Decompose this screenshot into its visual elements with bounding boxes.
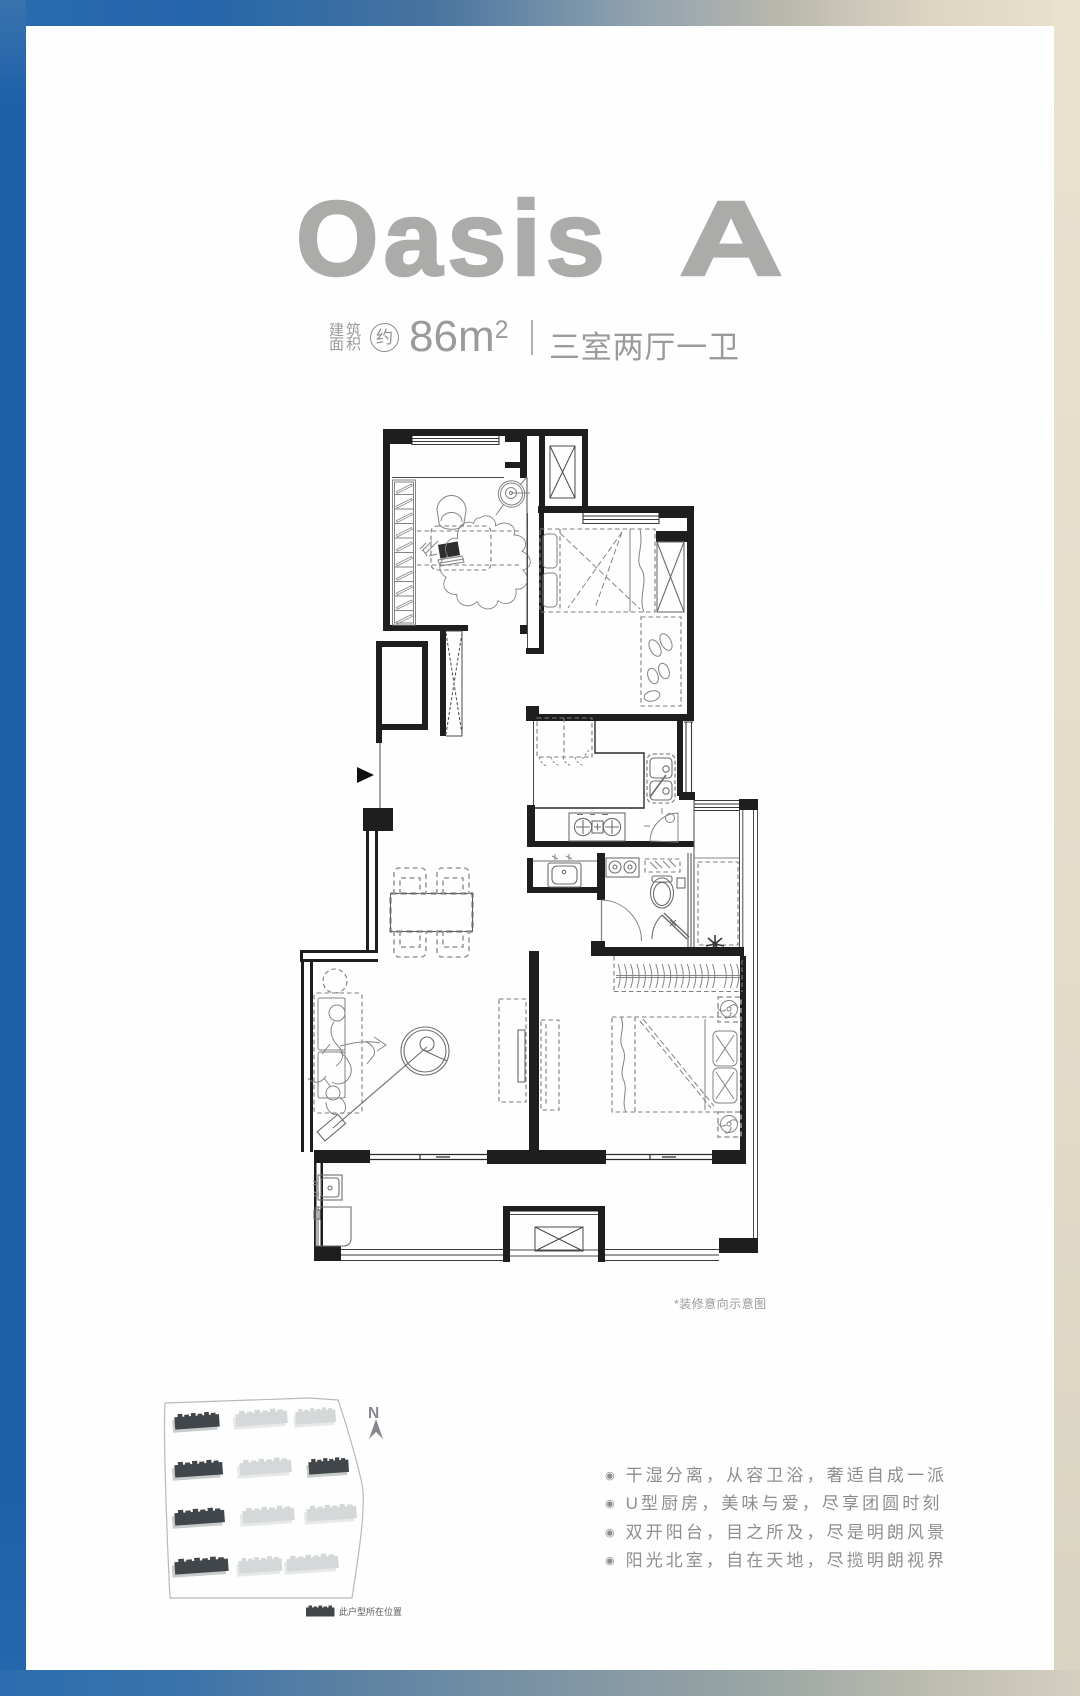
svg-text:N: N bbox=[368, 1405, 379, 1422]
